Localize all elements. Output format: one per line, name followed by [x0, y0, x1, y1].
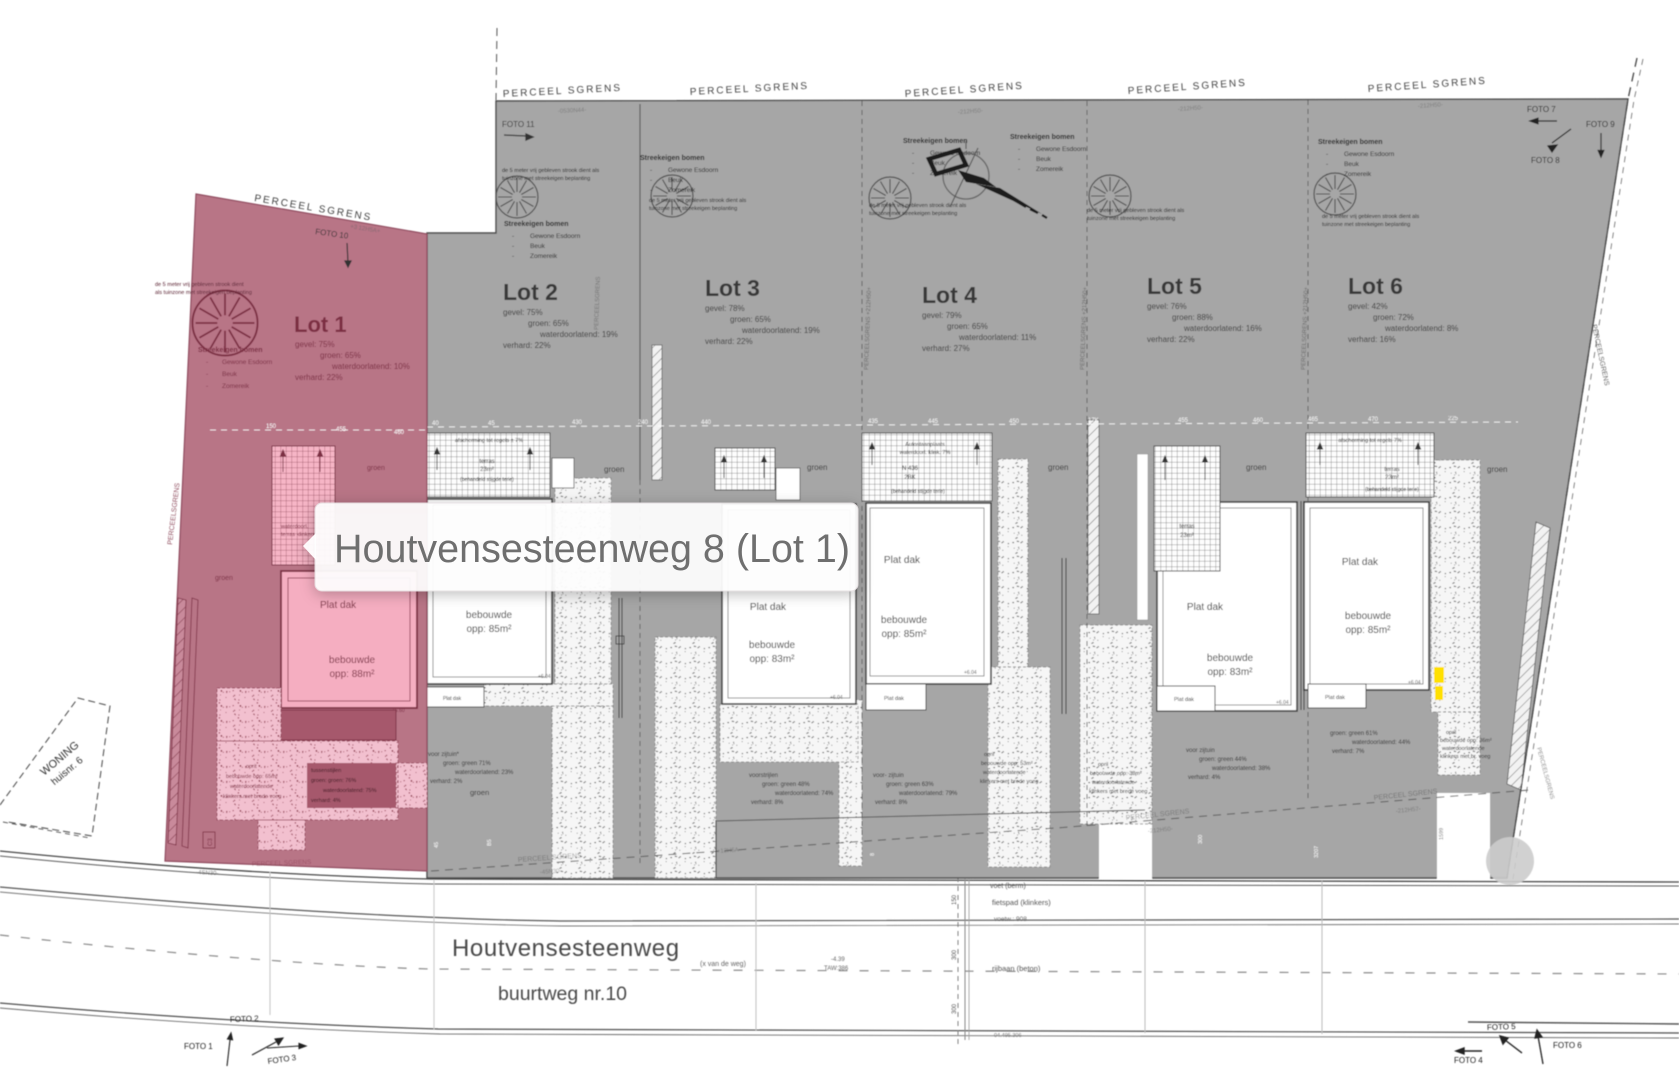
svg-text:FOTO 8: FOTO 8 [1531, 156, 1560, 165]
svg-text:470: 470 [1368, 417, 1379, 423]
svg-text:-: - [650, 187, 652, 194]
svg-text:afscherming tot regels 7%: afscherming tot regels 7% [1338, 438, 1402, 444]
svg-text:Plat dak: Plat dak [750, 602, 787, 613]
svg-text:-: - [206, 371, 208, 378]
svg-text:waterdoorlatend: 38%: waterdoorlatend: 38% [1211, 766, 1271, 772]
svg-text:waterdoorlatend: 75%: waterdoorlatend: 75% [322, 788, 377, 794]
svg-text:groen: groen [1246, 463, 1266, 472]
svg-text:terras: terras [479, 459, 494, 465]
svg-text:de 5 meter vrij gebleven stroo: de 5 meter vrij gebleven strook dient al… [649, 198, 746, 204]
svg-text:Zomereik: Zomereik [1036, 166, 1064, 173]
svg-text:waterdoorlatende: waterdoorlatende [229, 784, 273, 790]
svg-text:Plat dak: Plat dak [1174, 697, 1194, 703]
svg-text:groen: green 48%: groen: green 48% [762, 782, 810, 788]
svg-text:fietspad (klinkers): fietspad (klinkers) [992, 898, 1051, 907]
svg-text:bebouwde: bebouwde [1207, 653, 1254, 664]
svg-text:waterdoorlatende: waterdoorlatende [1091, 780, 1135, 786]
svg-text:150: 150 [266, 424, 277, 430]
svg-text:groen: groen [1487, 465, 1507, 474]
svg-text:tuinzone met streekeigen bepla: tuinzone met streekeigen beplanting [1322, 222, 1410, 228]
svg-text:Plat dak: Plat dak [884, 555, 921, 566]
svg-text:gevel: 42%: gevel: 42% [1348, 302, 1388, 311]
svg-text:Zomereik: Zomereik [1344, 171, 1372, 178]
svg-text:455: 455 [336, 427, 347, 433]
svg-text:terras: terras [1384, 467, 1399, 473]
svg-text:N: N [1015, 848, 1021, 852]
svg-text:tuinzone met streekeigen bepla: tuinzone met streekeigen beplanting [502, 176, 590, 182]
svg-text:voor zijtuin: voor zijtuin [1186, 748, 1215, 754]
svg-text:verhard: 8%: verhard: 8% [875, 800, 908, 806]
svg-text:Plat dak: Plat dak [884, 696, 904, 702]
svg-text:verhard: 22%: verhard: 22% [503, 341, 551, 350]
svg-text:455: 455 [1178, 418, 1189, 424]
svg-text:voor- zijtuin: voor- zijtuin [873, 773, 904, 779]
svg-text:groen: 65%: groen: 65% [730, 315, 771, 324]
svg-text:de 5 meter vrij gebleven stroo: de 5 meter vrij gebleven strook dient al… [1087, 208, 1184, 214]
svg-text:1599: 1599 [1439, 828, 1445, 840]
svg-text:waterdoorlatend: 23%: waterdoorlatend: 23% [454, 770, 514, 776]
svg-text:bebouwde opp: 65m²: bebouwde opp: 65m² [226, 774, 278, 780]
svg-text:-: - [1326, 161, 1328, 168]
svg-text:waterdoorlatende: waterdoorlatende [1441, 746, 1485, 752]
svg-text:Lot 5: Lot 5 [1147, 273, 1202, 299]
svg-text:groen: green 61%: groen: green 61% [1330, 731, 1378, 737]
svg-text:groen: green 63%: groen: green 63% [886, 782, 934, 788]
svg-text:Beuk: Beuk [1036, 156, 1052, 163]
svg-text:waterdoorl.: waterdoorl. [280, 524, 309, 530]
svg-text:150: 150 [952, 894, 958, 905]
svg-text:groen: groen [367, 465, 385, 472]
svg-text:440: 440 [701, 420, 712, 426]
svg-text:opril: opril [984, 752, 994, 758]
svg-text:groen: green 44%: groen: green 44% [1199, 757, 1247, 763]
svg-text:-4SN30-: -4SN30- [196, 870, 219, 877]
svg-text:Lot 6: Lot 6 [1348, 273, 1403, 299]
svg-text:Streekeigen bomen: Streekeigen bomen [504, 221, 569, 228]
svg-text:-: - [1018, 156, 1020, 163]
svg-text:tuinzone met streekeigen bepla: tuinzone met streekeigen beplanting [1087, 216, 1175, 222]
svg-text:tussenstijlen: tussenstijlen [311, 768, 341, 774]
svg-text:bebouwde: bebouwde [1345, 611, 1392, 622]
svg-text:rijbaan (beton): rijbaan (beton) [992, 964, 1041, 973]
svg-text:bebouwde: bebouwde [749, 640, 796, 651]
svg-text:Houtvensesteenweg: Houtvensesteenweg [452, 935, 680, 962]
svg-text:17K: 17K [1088, 418, 1099, 424]
svg-text:groen: 65%: groen: 65% [947, 322, 988, 331]
svg-text:voorstrijlen: voorstrijlen [749, 773, 778, 779]
svg-text:430: 430 [572, 420, 583, 426]
svg-text:-: - [1326, 151, 1328, 158]
svg-text:04.495.306: 04.495.306 [994, 1033, 1022, 1039]
svg-text:C3: C3 [208, 838, 214, 846]
svg-text:de 5 meter vrij gebleven stroo: de 5 meter vrij gebleven strook dient al… [1322, 214, 1419, 220]
svg-text:waterdoorlatend: 44%: waterdoorlatend: 44% [1351, 740, 1411, 746]
svg-text:225: 225 [1448, 416, 1459, 422]
svg-text:groen: groen [604, 465, 624, 474]
svg-text:waterdoorlatend: 79%: waterdoorlatend: 79% [898, 791, 958, 797]
svg-text:460: 460 [1253, 418, 1264, 424]
svg-text:FOTO 4: FOTO 4 [1454, 1056, 1483, 1065]
svg-text:de 5 meter vrij gebleven stroo: de 5 meter vrij gebleven strook dient [155, 282, 244, 288]
svg-text:Gewone Esdoorn: Gewone Esdoorn [222, 359, 273, 366]
svg-text:-: - [912, 170, 914, 177]
svg-text:+6.04: +6.04 [1408, 680, 1421, 686]
svg-text:-: - [1018, 146, 1020, 153]
svg-text:-: - [912, 160, 914, 167]
svg-text:terras klinkers: terras klinkers [281, 532, 315, 538]
svg-text:460: 460 [394, 430, 405, 436]
svg-text:-: - [512, 243, 514, 250]
svg-text:Plat dak: Plat dak [1342, 557, 1379, 568]
svg-text:Lot 2: Lot 2 [503, 279, 558, 305]
svg-text:450: 450 [1009, 419, 1020, 425]
svg-text:klinkers met brede voeg: klinkers met brede voeg [223, 794, 281, 800]
svg-text:opp: 85m²: opp: 85m² [881, 629, 927, 640]
svg-text:FOTO 2: FOTO 2 [230, 1014, 260, 1024]
svg-text:verhard: 8%: verhard: 8% [751, 800, 784, 806]
svg-text:Houtvensesteenweg 8 (Lot 1): Houtvensesteenweg 8 (Lot 1) [334, 527, 850, 571]
svg-text:verhard: 22%: verhard: 22% [705, 337, 753, 346]
svg-text:verhard: 16%: verhard: 16% [1348, 335, 1396, 344]
svg-text:(behandeld stijgde terie): (behandeld stijgde terie) [1365, 487, 1419, 493]
svg-text:23m²: 23m² [1180, 533, 1194, 539]
svg-text:klinkers met br. voeg: klinkers met br. voeg [1440, 754, 1490, 760]
svg-text:23m²: 23m² [480, 467, 494, 473]
svg-text:435: 435 [868, 419, 879, 425]
svg-text:300: 300 [1198, 835, 1204, 844]
svg-text:waterdoorlatend: 11%: waterdoorlatend: 11% [958, 333, 1036, 342]
svg-text:voet (berm): voet (berm) [990, 883, 1026, 890]
svg-text:Streekeigen bomen: Streekeigen bomen [1010, 134, 1075, 141]
svg-text:voetw.: 908: voetw.: 908 [994, 916, 1027, 923]
svg-text:FOTO 11: FOTO 11 [502, 120, 535, 129]
svg-text:gevel: 75%: gevel: 75% [295, 340, 335, 349]
svg-text:bebouwde: bebouwde [881, 615, 928, 626]
svg-text:(behandeld stijgde terie): (behandeld stijgde terie) [460, 477, 514, 483]
svg-text:verhard: 4%: verhard: 4% [1188, 775, 1221, 781]
svg-text:-: - [1326, 171, 1328, 178]
svg-text:de 5 meter vrij gebleven stroo: de 5 meter vrij gebleven strook dient al… [502, 168, 599, 174]
svg-text:Gewone Esdoorn: Gewone Esdoorn [1344, 151, 1395, 158]
svg-text:groen: 65%: groen: 65% [320, 351, 361, 360]
svg-text:groen: green 71%: groen: green 71% [443, 761, 491, 767]
svg-text:240: 240 [638, 420, 649, 426]
svg-text:Plat dak: Plat dak [1187, 602, 1224, 613]
svg-text:opp: 85m²: opp: 85m² [466, 624, 512, 635]
svg-text:FOTO 6: FOTO 6 [1553, 1041, 1582, 1050]
svg-text:Plat dak: Plat dak [1325, 695, 1345, 701]
svg-text:Gewone Esdoorn: Gewone Esdoorn [668, 167, 719, 174]
svg-text:buurtweg nr.10: buurtweg nr.10 [498, 983, 627, 1005]
svg-text:klinkers met brede voeg: klinkers met brede voeg [1089, 789, 1147, 795]
svg-text:Zomereik: Zomereik [222, 383, 250, 390]
svg-text:verhard: 2%: verhard: 2% [430, 779, 463, 785]
svg-text:bebouwde opp: 36m²: bebouwde opp: 36m² [1440, 738, 1492, 744]
svg-text:-: - [650, 167, 652, 174]
svg-text:opp: 83m²: opp: 83m² [749, 654, 795, 665]
svg-text:bebouwde opp: 53m²: bebouwde opp: 53m² [981, 761, 1033, 767]
svg-text:45: 45 [488, 421, 495, 427]
svg-text:Streekeigen bomen: Streekeigen bomen [640, 155, 705, 162]
svg-text:tuinzone met streekeigen bepla: tuinzone met streekeigen beplanting [649, 206, 737, 212]
svg-text:Beuk: Beuk [222, 371, 238, 378]
svg-text:klinkers met brede voeg: klinkers met brede voeg [980, 779, 1038, 785]
svg-text:-4.39: -4.39 [831, 957, 845, 963]
svg-text:opril: opril [1446, 730, 1456, 736]
svg-text:waterdoorlatend: 16%: waterdoorlatend: 16% [1183, 324, 1262, 333]
svg-text:bebouwde: bebouwde [329, 655, 376, 666]
svg-text:bebouwde opp: 33m²: bebouwde opp: 33m² [1090, 771, 1142, 777]
svg-text:TAW:386: TAW:386 [824, 966, 849, 972]
svg-text:23m²: 23m² [1385, 475, 1399, 481]
svg-text:waterdoorlatend: 10%: waterdoorlatend: 10% [331, 362, 410, 371]
svg-text:gevel: 76%: gevel: 76% [1147, 302, 1187, 311]
svg-text:Gewone Esdoorn: Gewone Esdoorn [530, 233, 581, 240]
svg-text:Plat dak: Plat dak [320, 600, 357, 611]
svg-text:Beuk: Beuk [668, 177, 684, 184]
svg-text:Streekeigen bomen: Streekeigen bomen [198, 347, 263, 354]
svg-text:45: 45 [434, 842, 440, 848]
svg-text:3207: 3207 [1314, 846, 1320, 858]
svg-text:voor zijtuin*: voor zijtuin* [428, 752, 460, 758]
svg-text:-: - [206, 359, 208, 366]
svg-text:FOTO 1: FOTO 1 [184, 1042, 213, 1051]
svg-text:opp: 88m²: opp: 88m² [329, 669, 375, 680]
svg-text:bebouwde: bebouwde [466, 610, 513, 621]
svg-text:opp: 83m²: opp: 83m² [1207, 667, 1253, 678]
svg-text:Lot 3: Lot 3 [705, 275, 760, 301]
svg-text:Streekeigen bomen: Streekeigen bomen [903, 138, 968, 145]
svg-text:Lot 1: Lot 1 [294, 312, 347, 337]
svg-text:Beuk: Beuk [1344, 161, 1360, 168]
svg-text:(x van de weg): (x van de weg) [700, 961, 746, 968]
svg-text:-: - [1018, 166, 1020, 173]
svg-text:+6.04: +6.04 [830, 695, 843, 701]
svg-text:8: 8 [870, 853, 876, 856]
svg-text:300: 300 [952, 949, 958, 960]
svg-text:-: - [512, 233, 514, 240]
svg-text:waterdoorlatend: 8%: waterdoorlatend: 8% [1384, 324, 1458, 333]
svg-text:Lot 4: Lot 4 [922, 282, 977, 308]
svg-text:Autostaanplaats: Autostaanplaats [905, 442, 945, 448]
svg-text:groen: groen [215, 575, 233, 582]
svg-text:opril: opril [1098, 762, 1108, 768]
svg-text:groen: 88%: groen: 88% [1172, 313, 1213, 322]
svg-text:waterdoorlatend: 19%: waterdoorlatend: 19% [539, 330, 618, 339]
svg-text:Gewone Esdoorn: Gewone Esdoorn [1036, 146, 1087, 153]
svg-text:groen: 65%: groen: 65% [528, 319, 569, 328]
svg-text:groen: groen [470, 788, 489, 797]
svg-text:-: - [206, 383, 208, 390]
svg-text:300: 300 [952, 1003, 958, 1014]
svg-text:+6.04: +6.04 [1276, 700, 1289, 706]
svg-text:gevel: 79%: gevel: 79% [922, 311, 962, 320]
svg-text:groen: groen [1048, 463, 1068, 472]
svg-text:Zomereik: Zomereik [668, 187, 696, 194]
svg-text:verhard: 7%: verhard: 7% [1332, 749, 1365, 755]
svg-text:tuinzone met streekeigen bepla: tuinzone met streekeigen beplanting [869, 211, 957, 217]
svg-text:verhard: 22%: verhard: 22% [1147, 335, 1195, 344]
svg-text:465: 465 [1308, 417, 1319, 423]
svg-text:waterdoorlatend: 19%: waterdoorlatend: 19% [741, 326, 820, 335]
svg-text:FOTO 9: FOTO 9 [1586, 120, 1615, 129]
svg-text:terras: terras [1179, 524, 1194, 530]
svg-text:B5: B5 [487, 839, 493, 846]
svg-text:gevel: 78%: gevel: 78% [705, 304, 745, 313]
svg-text:verhard: 4%: verhard: 4% [311, 798, 341, 804]
svg-text:(behandeld stijgde terie): (behandeld stijgde terie) [891, 489, 945, 495]
svg-text:-: - [650, 177, 652, 184]
svg-text:waterdoorlatend: 74%: waterdoorlatend: 74% [774, 791, 834, 797]
svg-text:verhard: 27%: verhard: 27% [922, 344, 970, 353]
svg-text:FOTO 5: FOTO 5 [1487, 1022, 1517, 1032]
svg-text:groen: 72%: groen: 72% [1373, 313, 1414, 322]
svg-text:40: 40 [432, 421, 439, 427]
svg-text:Beuk: Beuk [530, 243, 546, 250]
svg-text:verhard: 22%: verhard: 22% [295, 373, 343, 382]
svg-text:als tuinzone met streekeigen b: als tuinzone met streekeigen beplanting [155, 290, 252, 296]
svg-text:-: - [912, 150, 914, 157]
svg-text:-: - [512, 253, 514, 260]
svg-text:gevel: 75%: gevel: 75% [503, 308, 543, 317]
svg-text:Zomereik: Zomereik [530, 253, 558, 260]
svg-text:N 436: N 436 [902, 466, 919, 472]
svg-text:2BK: 2BK [904, 475, 915, 481]
svg-text:Plat dak: Plat dak [443, 696, 462, 702]
svg-text:oprit: oprit [246, 764, 257, 770]
svg-text:waterdoorlatende: waterdoorlatende [982, 770, 1026, 776]
svg-text:+6.04: +6.04 [964, 670, 977, 676]
svg-text:FOTO 7: FOTO 7 [1527, 105, 1556, 114]
svg-text:opp: 85m²: opp: 85m² [1345, 625, 1391, 636]
svg-text:afscherming tot regels ± 7%: afscherming tot regels ± 7% [455, 438, 523, 444]
svg-text:waterdoorl. klink. 7%: waterdoorl. klink. 7% [899, 450, 951, 456]
svg-text:groen: groen [807, 463, 827, 472]
svg-text:groen: groen: 76%: groen: groen: 76% [311, 778, 356, 784]
svg-text:445: 445 [928, 419, 939, 425]
svg-text:Streekeigen bomen: Streekeigen bomen [1318, 139, 1383, 146]
svg-text:+6.04: +6.04 [538, 674, 551, 680]
